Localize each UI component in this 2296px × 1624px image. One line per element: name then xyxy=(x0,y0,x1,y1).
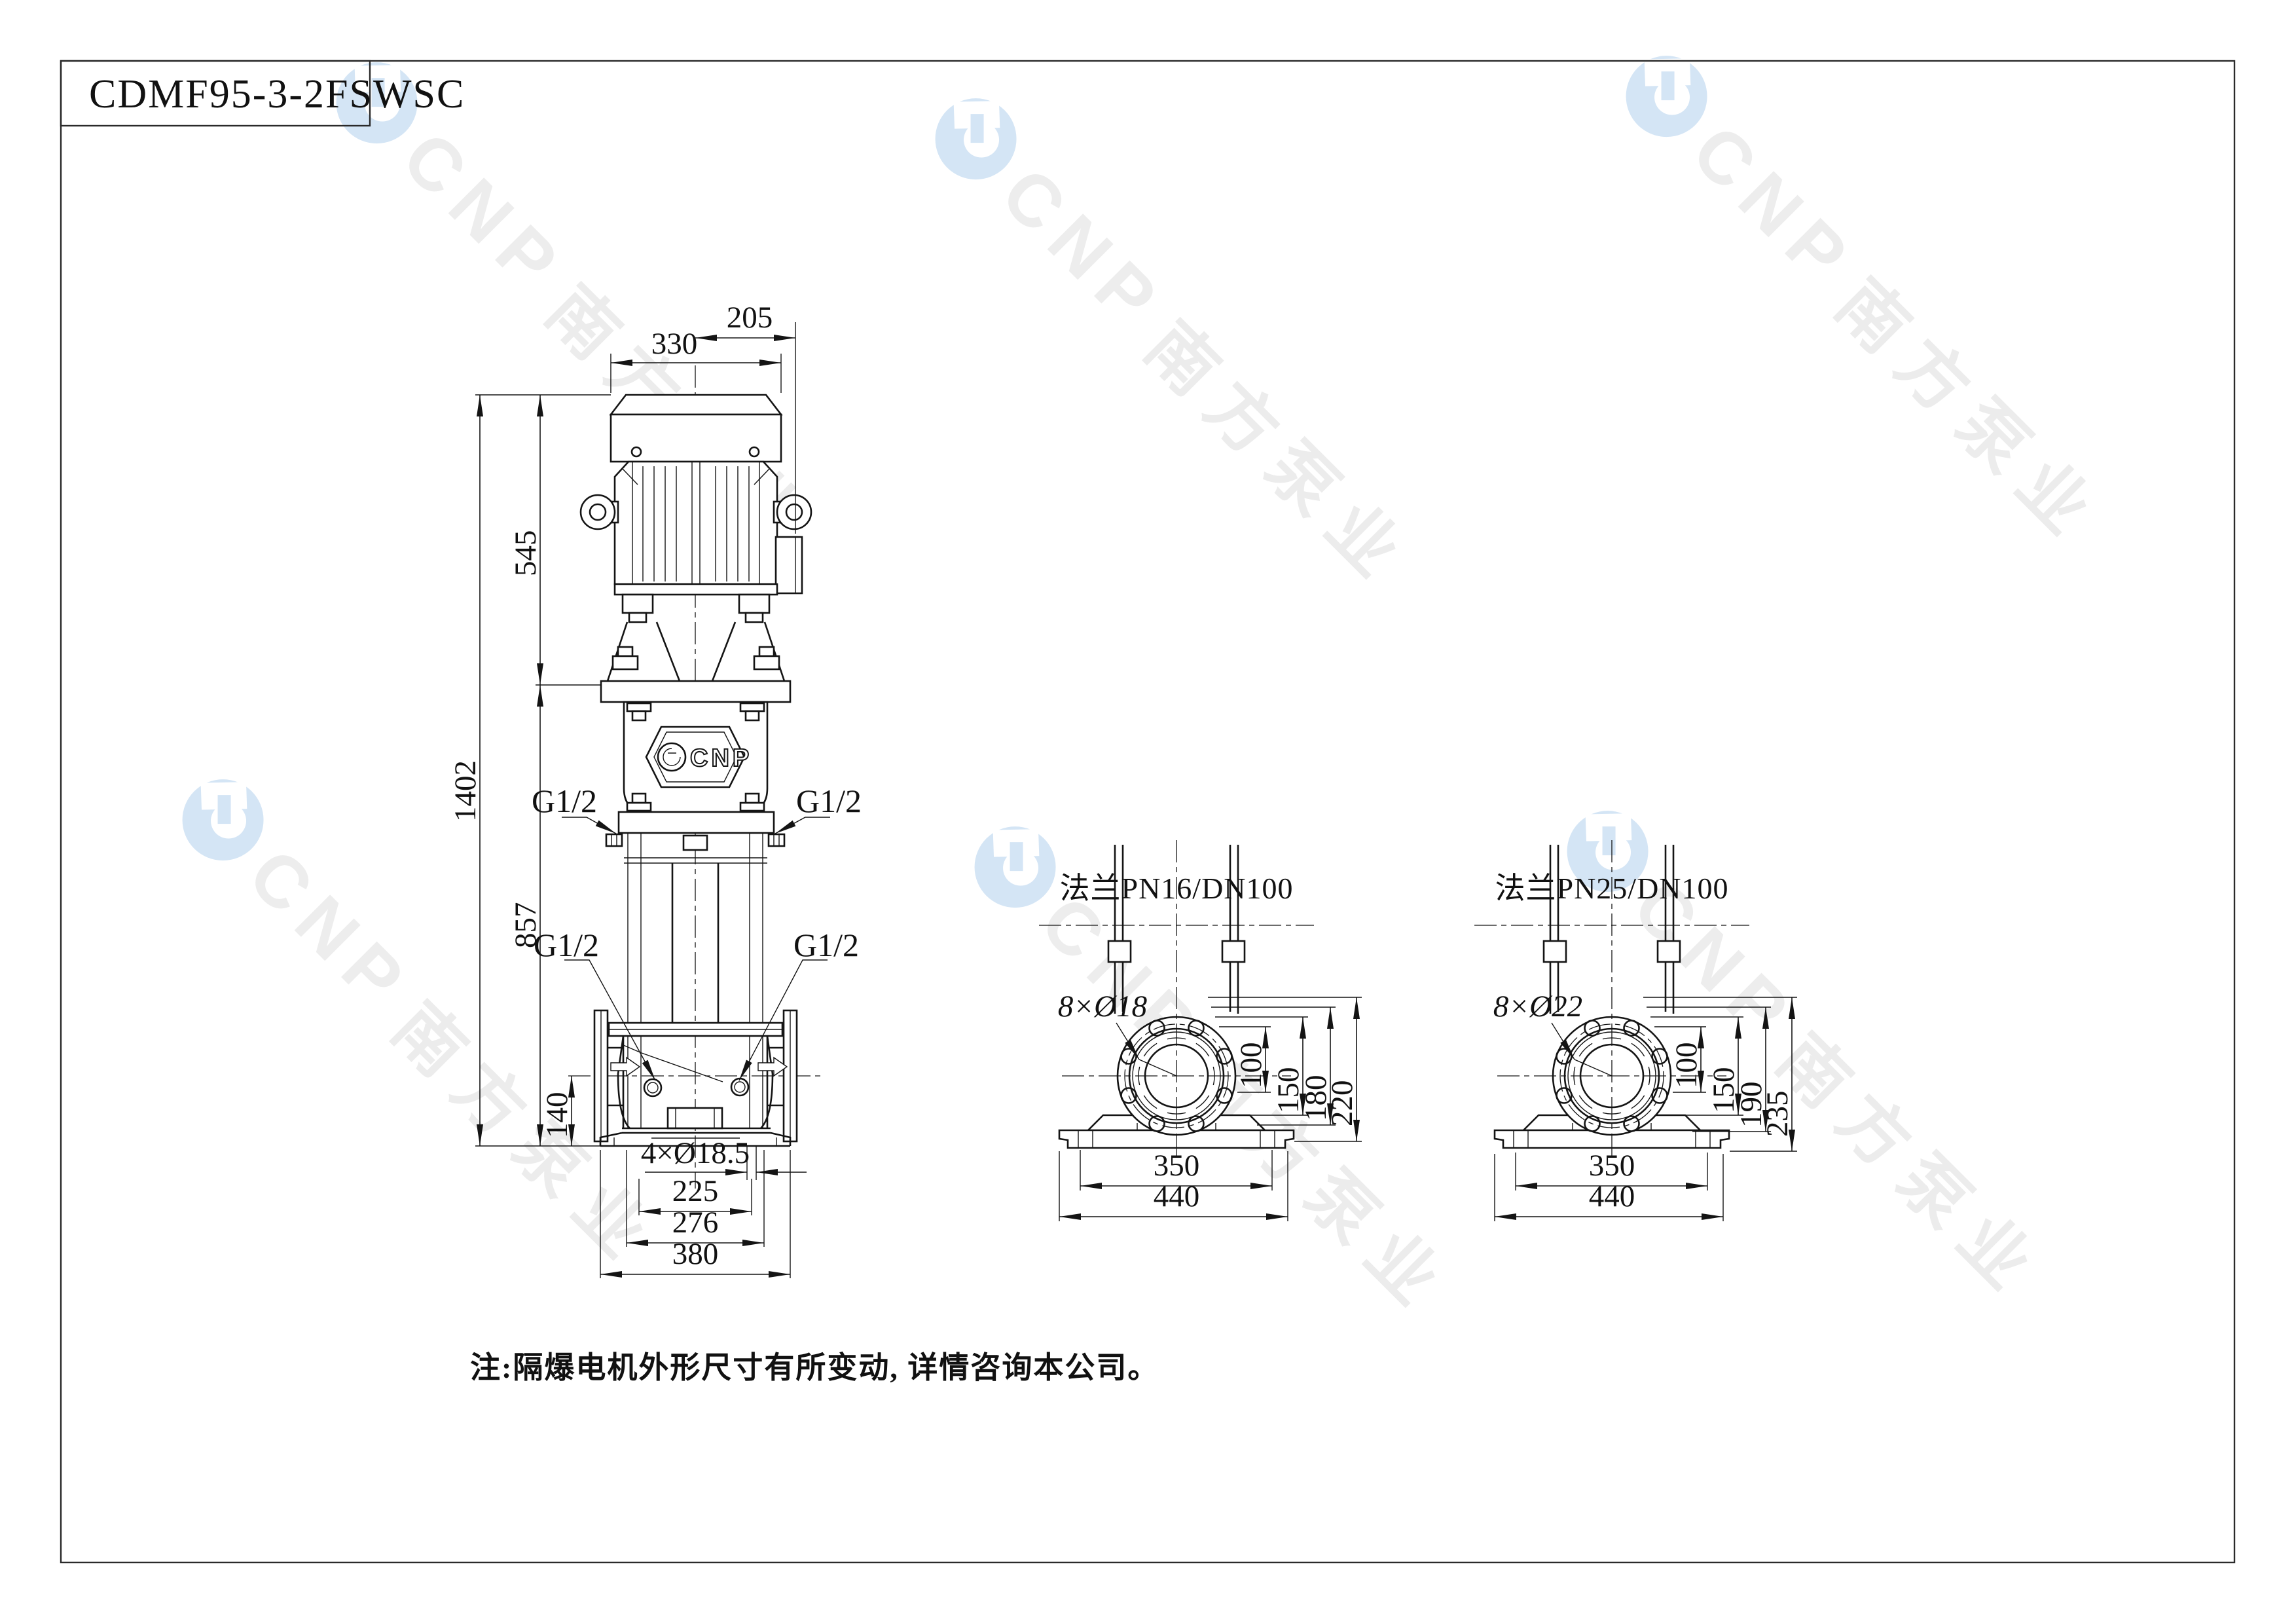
port-label-upper-left: G1/2 xyxy=(532,783,597,819)
motor-fan-cover xyxy=(611,395,781,462)
watermark-cnp: CNP xyxy=(233,834,428,1029)
dim-205: 205 xyxy=(727,301,773,335)
motor-terminal-box xyxy=(776,537,802,593)
watermark: CNP 南方泵业 xyxy=(913,79,1436,602)
dim-350: 350 xyxy=(1589,1149,1635,1183)
dim-100: 100 xyxy=(1669,1043,1704,1089)
dim-440: 440 xyxy=(1154,1179,1200,1213)
dim-1402: 1402 xyxy=(448,760,483,822)
watermark-brand: 南方泵业 xyxy=(1762,1020,2057,1315)
dim-100: 100 xyxy=(1234,1043,1268,1089)
watermark-brand: 南方泵业 xyxy=(1821,265,2116,560)
dim-140: 140 xyxy=(540,1092,574,1139)
flange-pn16-label: 法兰PN16/DN100 xyxy=(1059,872,1293,905)
port-label-upper-right: G1/2 xyxy=(796,783,862,819)
watermark: CNP 南方泵业 xyxy=(1603,36,2127,560)
page-title: CDMF95-3-2FSWSC xyxy=(89,72,465,117)
dim-220: 220 xyxy=(1325,1080,1359,1127)
stool-plate xyxy=(601,681,790,702)
dim-225: 225 xyxy=(672,1174,719,1208)
dim-276: 276 xyxy=(672,1206,719,1240)
watermark-cnp: CNP xyxy=(986,153,1181,348)
pump-head: CNP xyxy=(619,702,774,833)
watermark-cnp: CNP xyxy=(387,117,582,312)
watermark-brand: 南方泵业 xyxy=(1131,308,1425,602)
drain-port-right xyxy=(731,1079,748,1096)
port-label-lower-left: G1/2 xyxy=(534,927,599,963)
dim-base-holes: 4×Ø18.5 xyxy=(641,1136,750,1170)
eye-bolt-left xyxy=(581,495,618,529)
dim-380: 380 xyxy=(672,1237,719,1271)
drawing-note: 注:隔爆电机外形尺寸有所变动, 详情咨询本公司。 xyxy=(470,1351,1159,1384)
flange-pn16-holes: 8×Ø18 xyxy=(1058,989,1147,1024)
cnp-badge-text: CNP xyxy=(690,745,752,772)
port-label-lower-right: G1/2 xyxy=(793,927,859,963)
head-base-plate xyxy=(619,812,774,833)
flange-pn25-label: 法兰PN25/DN100 xyxy=(1495,872,1728,905)
flange-pn25-holes: 8×Ø22 xyxy=(1493,989,1582,1024)
motor-body xyxy=(615,462,777,584)
watermark-cnp: CNP xyxy=(1677,110,1872,305)
dim-235: 235 xyxy=(1760,1091,1795,1137)
dim-350: 350 xyxy=(1154,1149,1200,1183)
dim-440: 440 xyxy=(1589,1179,1635,1213)
dim-545: 545 xyxy=(509,530,543,577)
upper-port-fittings xyxy=(606,834,784,850)
pump-dimension-drawing: CNP 南方泵业 CNP 南方泵业 CNP 南方泵业 CNP 南方泵业 CNP … xyxy=(0,0,2296,1624)
dim-857: 857 xyxy=(509,902,543,949)
dim-330: 330 xyxy=(651,327,698,361)
drawing-page: CNP 南方泵业 CNP 南方泵业 CNP 南方泵业 CNP 南方泵业 CNP … xyxy=(0,0,2296,1624)
drain-port-left xyxy=(644,1079,661,1096)
motor-feet xyxy=(615,584,777,622)
flow-arrow-icon xyxy=(611,1058,640,1076)
